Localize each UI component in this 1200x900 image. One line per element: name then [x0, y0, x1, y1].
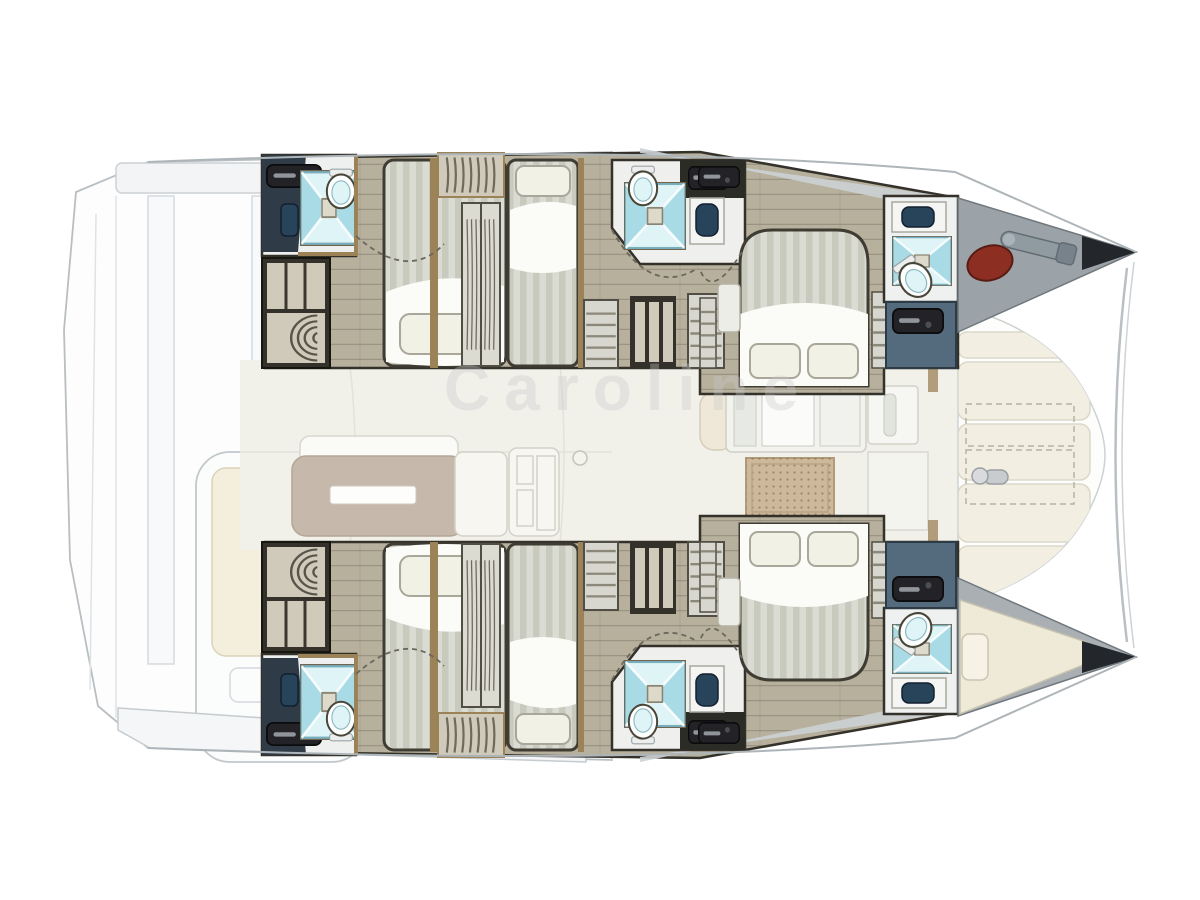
port-forepeak	[958, 198, 1136, 332]
davit-arm	[148, 196, 174, 664]
table-inset	[330, 486, 416, 504]
deck-hatch-icon	[573, 451, 587, 465]
pillow	[962, 634, 988, 680]
boat-diagram: Caroline	[0, 0, 1200, 900]
catamaran-floorplan: Caroline	[0, 0, 1200, 900]
watermark: Caroline	[444, 352, 812, 424]
galley-outline	[455, 448, 559, 536]
cockpit-rug	[746, 458, 834, 518]
sunpads	[958, 332, 1090, 602]
cabinet-slot	[884, 394, 896, 436]
windlass-icon	[972, 468, 1008, 484]
starboard-forepeak	[958, 578, 1136, 716]
bow-beam-curve-outer	[1122, 262, 1134, 648]
